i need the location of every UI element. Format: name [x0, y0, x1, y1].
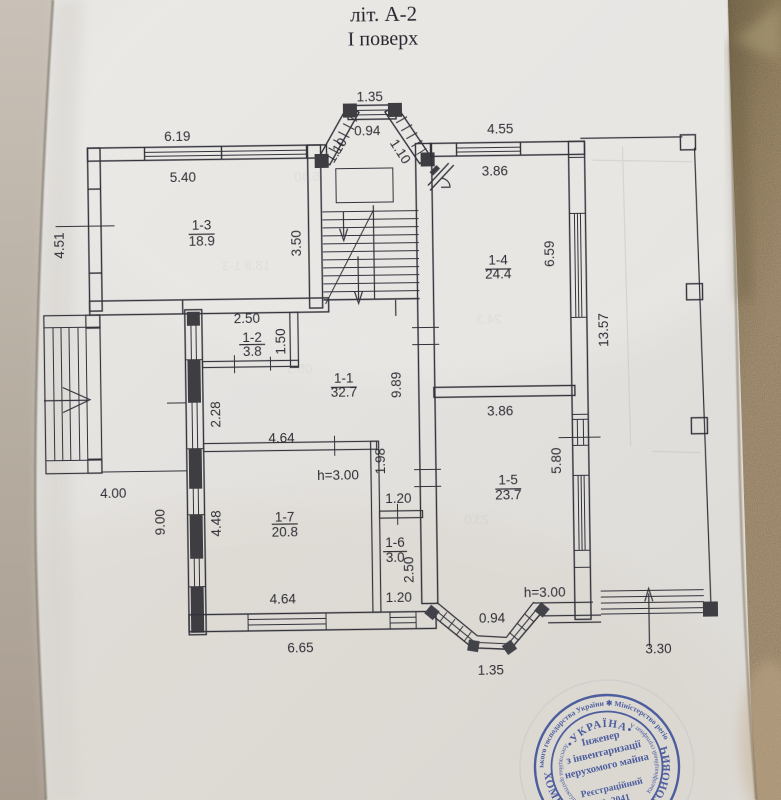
- svg-text:2.50: 2.50: [234, 311, 260, 326]
- svg-text:І поверх: І поверх: [348, 28, 419, 51]
- svg-text:1-4: 1-4: [488, 252, 508, 267]
- svg-text:6.19: 6.19: [164, 129, 190, 144]
- svg-text:9.00: 9.00: [153, 509, 168, 535]
- svg-text:1.20: 1.20: [385, 491, 411, 506]
- svg-text:літ. А-2: літ. А-2: [350, 2, 417, 27]
- svg-text:9.89: 9.89: [389, 372, 404, 398]
- svg-text:18.9 1-3: 18.9 1-3: [222, 258, 270, 274]
- svg-text:4.64: 4.64: [270, 591, 297, 606]
- svg-text:1.20: 1.20: [386, 590, 412, 605]
- svg-text:3.86: 3.86: [487, 403, 513, 418]
- svg-text:4.48: 4.48: [209, 510, 224, 536]
- svg-text:6.65: 6.65: [287, 640, 313, 655]
- svg-text:23.0: 23.0: [464, 512, 490, 527]
- svg-text:0.94: 0.94: [479, 610, 506, 625]
- svg-text:1.98: 1.98: [373, 448, 388, 474]
- svg-text:3.30: 3.30: [645, 641, 671, 656]
- svg-text:13.57: 13.57: [596, 313, 611, 347]
- svg-text:05.5: 05.5: [287, 361, 313, 376]
- svg-text:24.3: 24.3: [476, 311, 502, 326]
- svg-text:1.35: 1.35: [357, 89, 383, 104]
- svg-text:1-7: 1-7: [275, 509, 295, 524]
- svg-text:3.86: 3.86: [482, 163, 508, 178]
- svg-text:1-1: 1-1: [334, 371, 354, 386]
- svg-text:1-5: 1-5: [498, 472, 518, 487]
- svg-text:1-6: 1-6: [385, 535, 405, 550]
- svg-text:h=3.00: h=3.00: [524, 585, 566, 601]
- svg-text:5.80: 5.80: [549, 447, 564, 473]
- svg-text:4.00: 4.00: [100, 486, 126, 501]
- svg-text:1-2: 1-2: [242, 330, 262, 345]
- svg-text:4.51: 4.51: [52, 232, 67, 258]
- svg-text:3.50: 3.50: [289, 230, 304, 256]
- svg-text:5.40: 5.40: [294, 169, 320, 184]
- svg-text:0.94: 0.94: [354, 123, 381, 138]
- svg-text:2.50: 2.50: [401, 557, 416, 583]
- svg-text:18.9: 18.9: [189, 233, 215, 248]
- svg-text:4.55: 4.55: [487, 121, 513, 136]
- svg-text:h=3.00: h=3.00: [317, 467, 359, 483]
- svg-text:1.50: 1.50: [273, 328, 288, 354]
- svg-text:1.35: 1.35: [478, 662, 504, 677]
- svg-text:6.59: 6.59: [542, 241, 557, 267]
- svg-text:5.40: 5.40: [170, 170, 196, 185]
- svg-text:3.8: 3.8: [243, 344, 262, 359]
- svg-text:20.8: 20.8: [272, 524, 298, 539]
- svg-text:2.28: 2.28: [208, 401, 223, 427]
- svg-text:1-3: 1-3: [192, 217, 212, 232]
- svg-text:4.64: 4.64: [268, 430, 295, 445]
